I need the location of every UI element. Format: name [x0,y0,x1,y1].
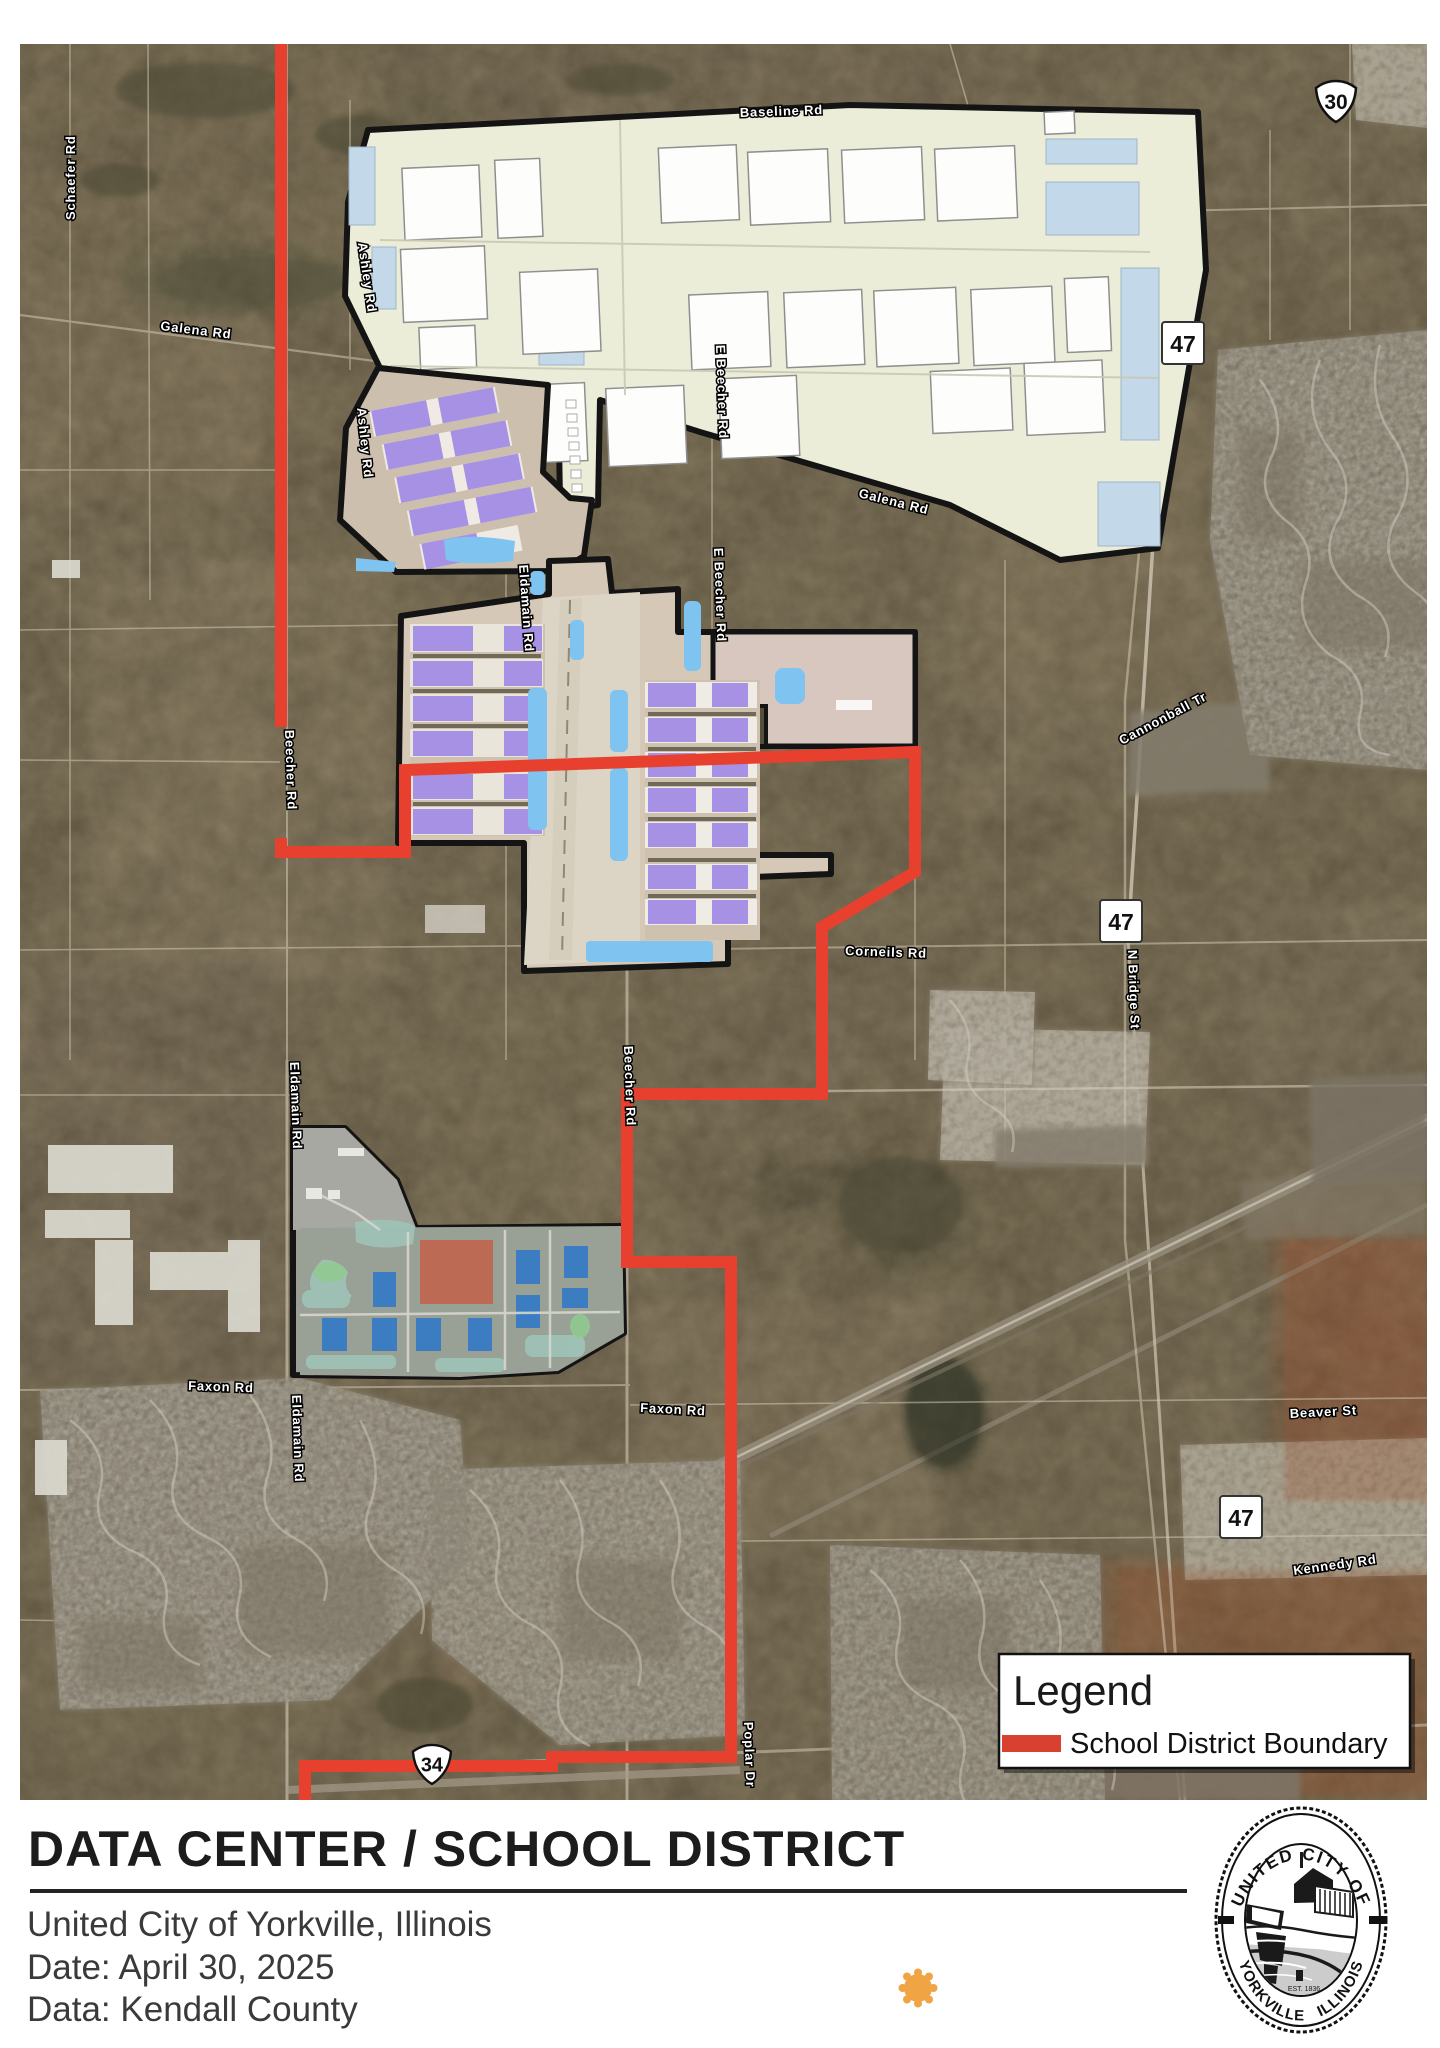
svg-text:47: 47 [1228,1505,1254,1531]
svg-text:N Bridge St: N Bridge St [1125,950,1143,1030]
svg-text:Eldamain Rd: Eldamain Rd [289,1395,307,1483]
svg-text:34: 34 [421,1755,443,1777]
svg-text:30: 30 [1324,91,1347,114]
svg-text:Poplar Dr: Poplar Dr [741,1722,758,1788]
svg-text:Beecher Rd: Beecher Rd [621,1046,639,1127]
svg-text:Eldamain Rd: Eldamain Rd [287,1062,305,1150]
svg-text:EST. 1836: EST. 1836 [1288,1986,1320,1993]
svg-text:Legend: Legend [1013,1667,1153,1714]
svg-text:Corneils Rd: Corneils Rd [845,943,927,961]
svg-text:Faxon Rd: Faxon Rd [188,1378,254,1395]
svg-text:School District Boundary: School District Boundary [1070,1728,1388,1760]
svg-text:47: 47 [1170,331,1196,357]
svg-text:Schaefer Rd: Schaefer Rd [63,135,78,220]
svg-text:Baseline Rd: Baseline Rd [740,102,824,120]
svg-text:Beecher Rd: Beecher Rd [282,730,300,811]
svg-text:47: 47 [1108,909,1134,935]
